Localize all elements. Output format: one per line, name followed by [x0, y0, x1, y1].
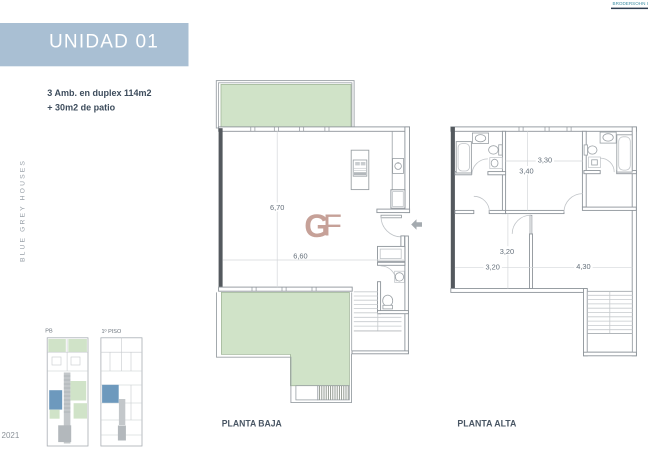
svg-text:6,70: 6,70 — [270, 203, 284, 212]
svg-text:PLANTA ALTA: PLANTA ALTA — [457, 418, 516, 428]
svg-text:BRODERSOHN INMOBILIARIA: BRODERSOHN INMOBILIARIA — [613, 1, 648, 6]
svg-text:UNIDAD 01: UNIDAD 01 — [49, 32, 159, 53]
svg-text:PLANTA BAJA: PLANTA BAJA — [222, 418, 282, 428]
svg-text:+ 30m2 de patio: + 30m2 de patio — [47, 103, 115, 113]
svg-text:PB: PB — [45, 328, 53, 334]
svg-text:3 Amb. en duplex 114m2: 3 Amb. en duplex 114m2 — [47, 88, 151, 98]
svg-text:F: F — [323, 207, 342, 242]
svg-text:6,60: 6,60 — [293, 251, 307, 260]
svg-text:BLUE GREY HOUSES: BLUE GREY HOUSES — [20, 159, 27, 262]
svg-text:3,20: 3,20 — [500, 247, 514, 256]
svg-text:3,30: 3,30 — [538, 155, 552, 164]
svg-text:3,20: 3,20 — [486, 262, 500, 271]
svg-text:3,40: 3,40 — [519, 166, 533, 175]
svg-text:4,30: 4,30 — [576, 262, 590, 271]
svg-text:2021: 2021 — [2, 431, 20, 440]
svg-text:1º PISO: 1º PISO — [102, 328, 122, 335]
